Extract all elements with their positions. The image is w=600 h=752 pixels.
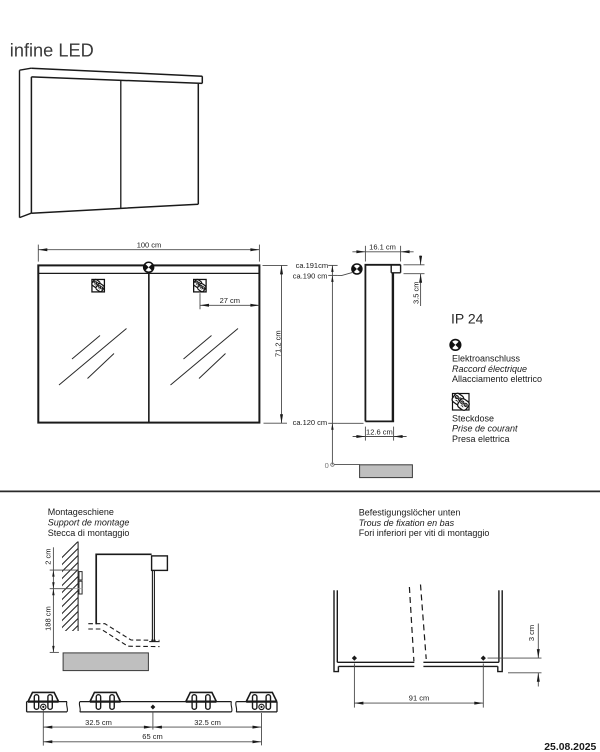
svg-text:188 cm: 188 cm	[44, 606, 53, 631]
svg-text:Raccord électrique: Raccord électrique	[452, 364, 527, 374]
svg-text:Steckdose: Steckdose	[452, 413, 494, 423]
svg-text:infine LED: infine LED	[10, 40, 94, 60]
svg-text:91 cm: 91 cm	[409, 694, 429, 703]
svg-text:Presa elettrica: Presa elettrica	[452, 434, 510, 444]
svg-text:3.5 cm: 3.5 cm	[412, 281, 421, 304]
svg-text:Montageschiene: Montageschiene	[48, 507, 114, 517]
svg-text:ca.191cm: ca.191cm	[296, 261, 329, 270]
svg-text:ca.120 cm: ca.120 cm	[293, 418, 328, 427]
svg-text:Fori inferiori per viti di mon: Fori inferiori per viti di montaggio	[359, 528, 490, 538]
svg-text:71.2 cm: 71.2 cm	[273, 330, 282, 357]
svg-text:16.1 cm: 16.1 cm	[369, 242, 396, 251]
svg-text:Allacciamento elettrico: Allacciamento elettrico	[452, 374, 542, 384]
svg-text:100 cm: 100 cm	[137, 240, 162, 249]
svg-text:32.5 cm: 32.5 cm	[194, 718, 221, 727]
svg-text:Prise de courant: Prise de courant	[452, 424, 518, 434]
svg-text:Befestigungslöcher unten: Befestigungslöcher unten	[359, 508, 461, 518]
svg-text:Support de montage: Support de montage	[48, 518, 130, 528]
svg-text:0: 0	[325, 461, 329, 470]
svg-text:27 cm: 27 cm	[220, 296, 240, 305]
svg-text:Elektroanschluss: Elektroanschluss	[452, 353, 521, 363]
svg-text:IP 24: IP 24	[451, 311, 484, 327]
svg-text:Stecca di montaggio: Stecca di montaggio	[48, 528, 130, 538]
svg-text:Trous de fixation en bas: Trous de fixation en bas	[359, 518, 455, 528]
svg-text:2 cm: 2 cm	[44, 548, 53, 564]
svg-text:65 cm: 65 cm	[142, 732, 162, 741]
svg-text:3 cm: 3 cm	[527, 625, 536, 641]
svg-text:12.6 cm: 12.6 cm	[366, 427, 393, 436]
svg-text:ca.190 cm: ca.190 cm	[293, 272, 328, 281]
svg-text:32.5 cm: 32.5 cm	[85, 718, 112, 727]
svg-text:25.08.2025: 25.08.2025	[544, 742, 596, 752]
